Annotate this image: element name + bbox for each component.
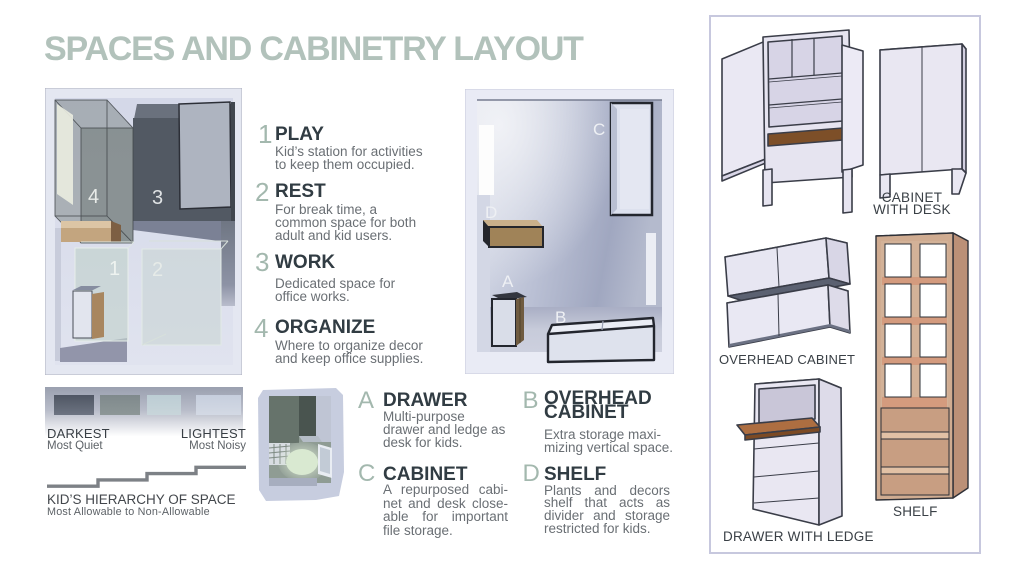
svg-text:C: C <box>593 120 605 139</box>
svg-text:3: 3 <box>152 187 163 209</box>
svg-text:4: 4 <box>88 186 99 208</box>
svg-text:B: B <box>555 308 566 327</box>
svg-text:2: 2 <box>152 259 163 281</box>
svg-text:1: 1 <box>109 258 120 280</box>
svg-text:D: D <box>485 203 497 222</box>
svg-text:A: A <box>502 272 514 291</box>
